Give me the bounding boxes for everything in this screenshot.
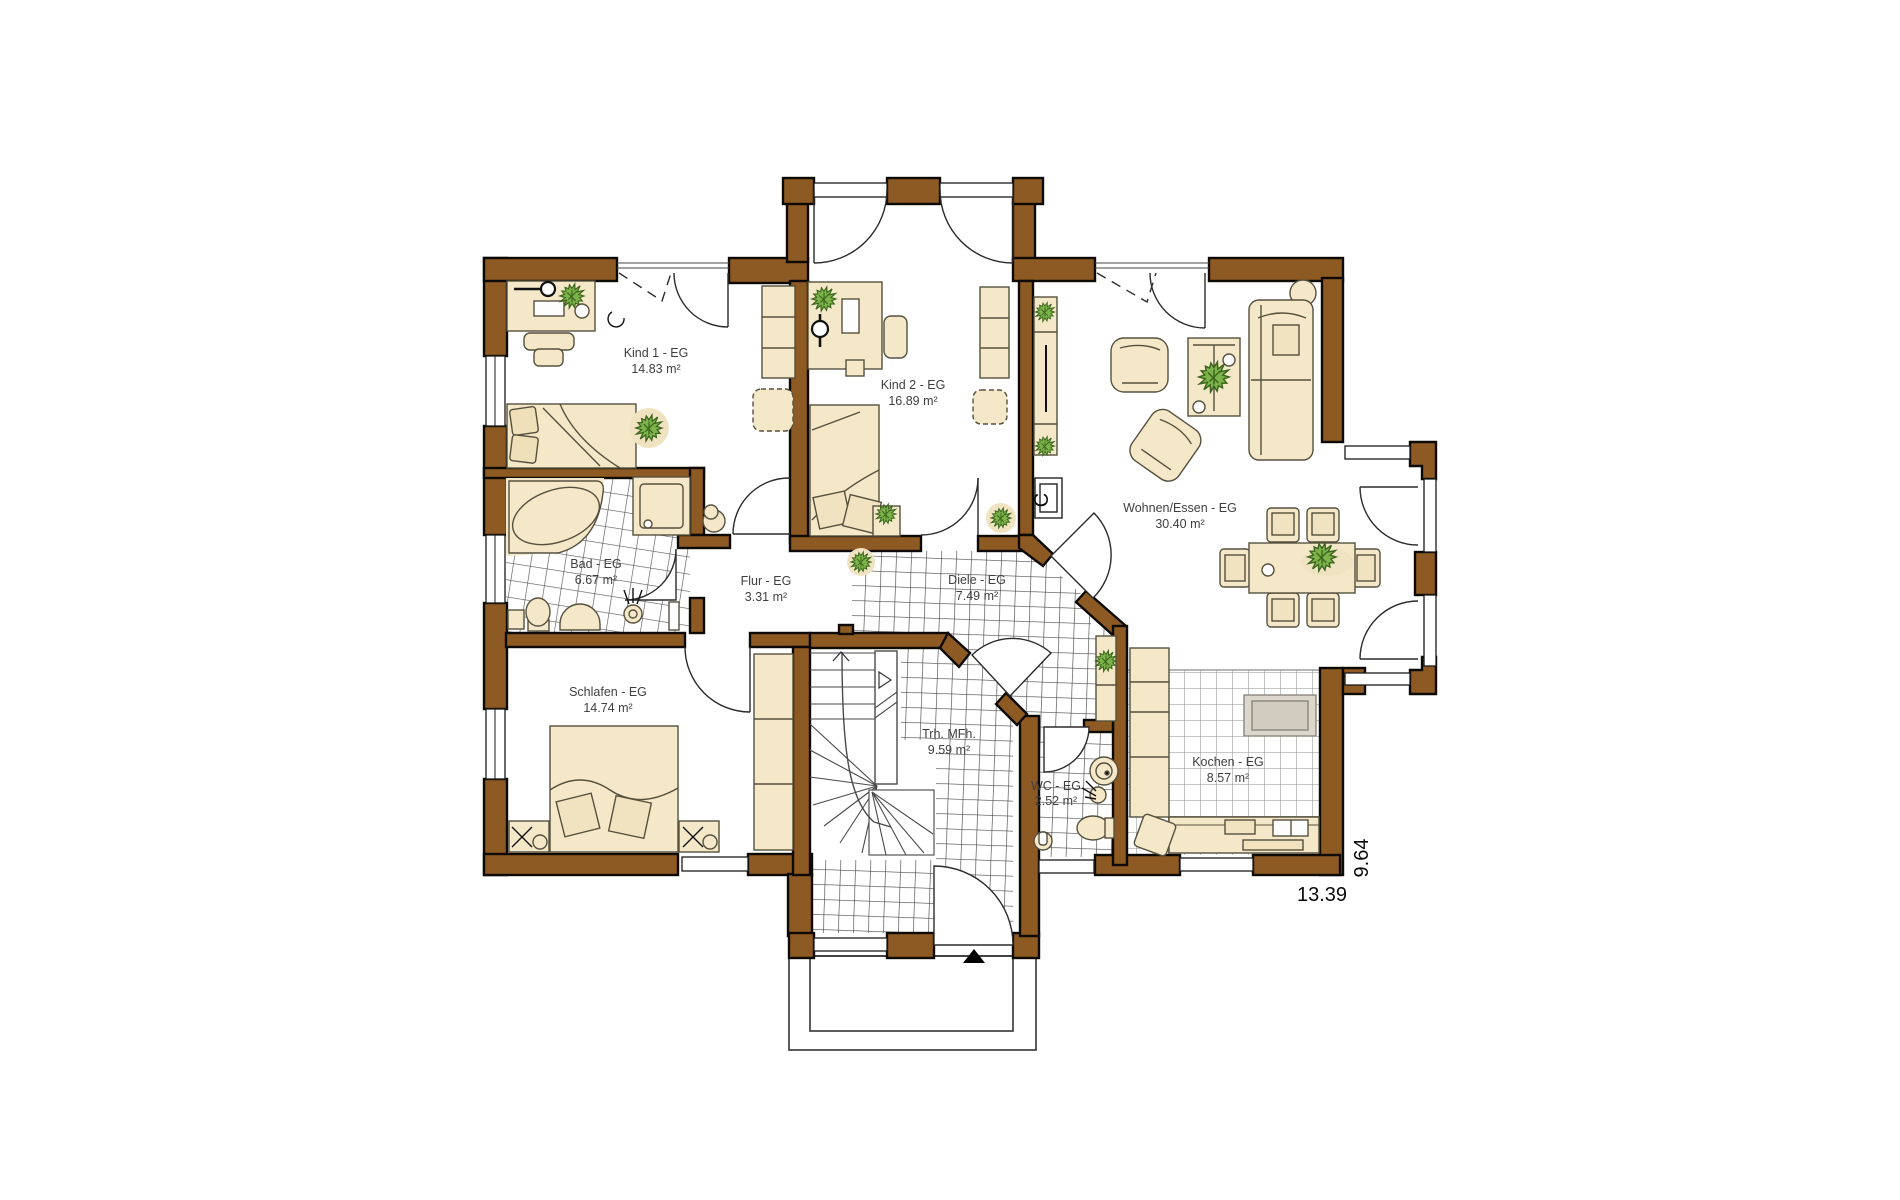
svg-text:2.52 m²: 2.52 m² bbox=[1035, 794, 1077, 808]
svg-text:Wohnen/Essen - EG: Wohnen/Essen - EG bbox=[1123, 501, 1237, 515]
svg-text:14.83 m²: 14.83 m² bbox=[631, 362, 680, 376]
svg-text:30.40 m²: 30.40 m² bbox=[1155, 517, 1204, 531]
svg-text:8.57 m²: 8.57 m² bbox=[1207, 771, 1249, 785]
svg-text:Flur - EG: Flur - EG bbox=[741, 574, 792, 588]
svg-text:7.49 m²: 7.49 m² bbox=[956, 589, 998, 603]
svg-text:Kind 1 - EG: Kind 1 - EG bbox=[624, 346, 689, 360]
svg-text:6.67 m²: 6.67 m² bbox=[575, 573, 617, 587]
svg-text:16.89 m²: 16.89 m² bbox=[888, 394, 937, 408]
svg-text:Schlafen - EG: Schlafen - EG bbox=[569, 685, 647, 699]
svg-text:Diele - EG: Diele - EG bbox=[948, 573, 1006, 587]
svg-text:C: C bbox=[1031, 493, 1053, 507]
svg-text:3.31 m²: 3.31 m² bbox=[745, 590, 787, 604]
svg-text:9.64: 9.64 bbox=[1351, 839, 1373, 878]
svg-text:13.39: 13.39 bbox=[1297, 884, 1347, 906]
svg-text:9.59 m²: 9.59 m² bbox=[928, 743, 970, 757]
svg-text:Bad - EG: Bad - EG bbox=[570, 557, 621, 571]
svg-text:Kind 2 - EG: Kind 2 - EG bbox=[881, 378, 946, 392]
svg-text:WC - EG: WC - EG bbox=[1031, 779, 1081, 793]
svg-text:Kochen - EG: Kochen - EG bbox=[1192, 755, 1264, 769]
svg-text:14.74 m²: 14.74 m² bbox=[583, 701, 632, 715]
svg-text:Trh. MFh.: Trh. MFh. bbox=[922, 727, 976, 741]
